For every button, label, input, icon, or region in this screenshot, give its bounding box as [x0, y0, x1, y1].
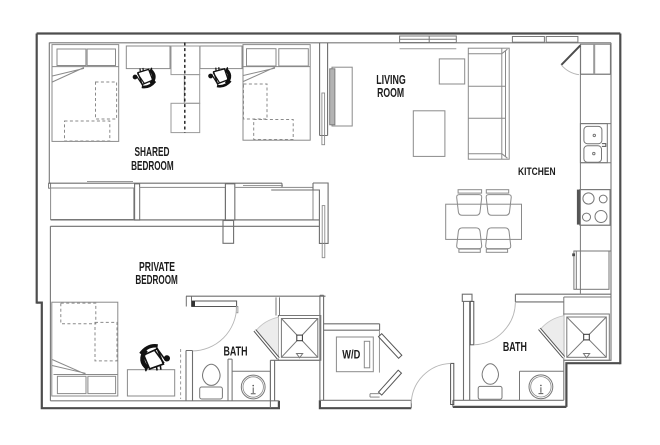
svg-text:BATH: BATH: [224, 344, 248, 359]
svg-text:ROOM: ROOM: [377, 85, 404, 100]
svg-text:BATH: BATH: [503, 339, 527, 354]
svg-text:KITCHEN: KITCHEN: [518, 166, 556, 178]
svg-text:BEDROOM: BEDROOM: [135, 272, 178, 287]
svg-text:SHARED: SHARED: [135, 144, 170, 159]
svg-text:BEDROOM: BEDROOM: [131, 158, 174, 173]
svg-text:W/D: W/D: [342, 350, 360, 362]
